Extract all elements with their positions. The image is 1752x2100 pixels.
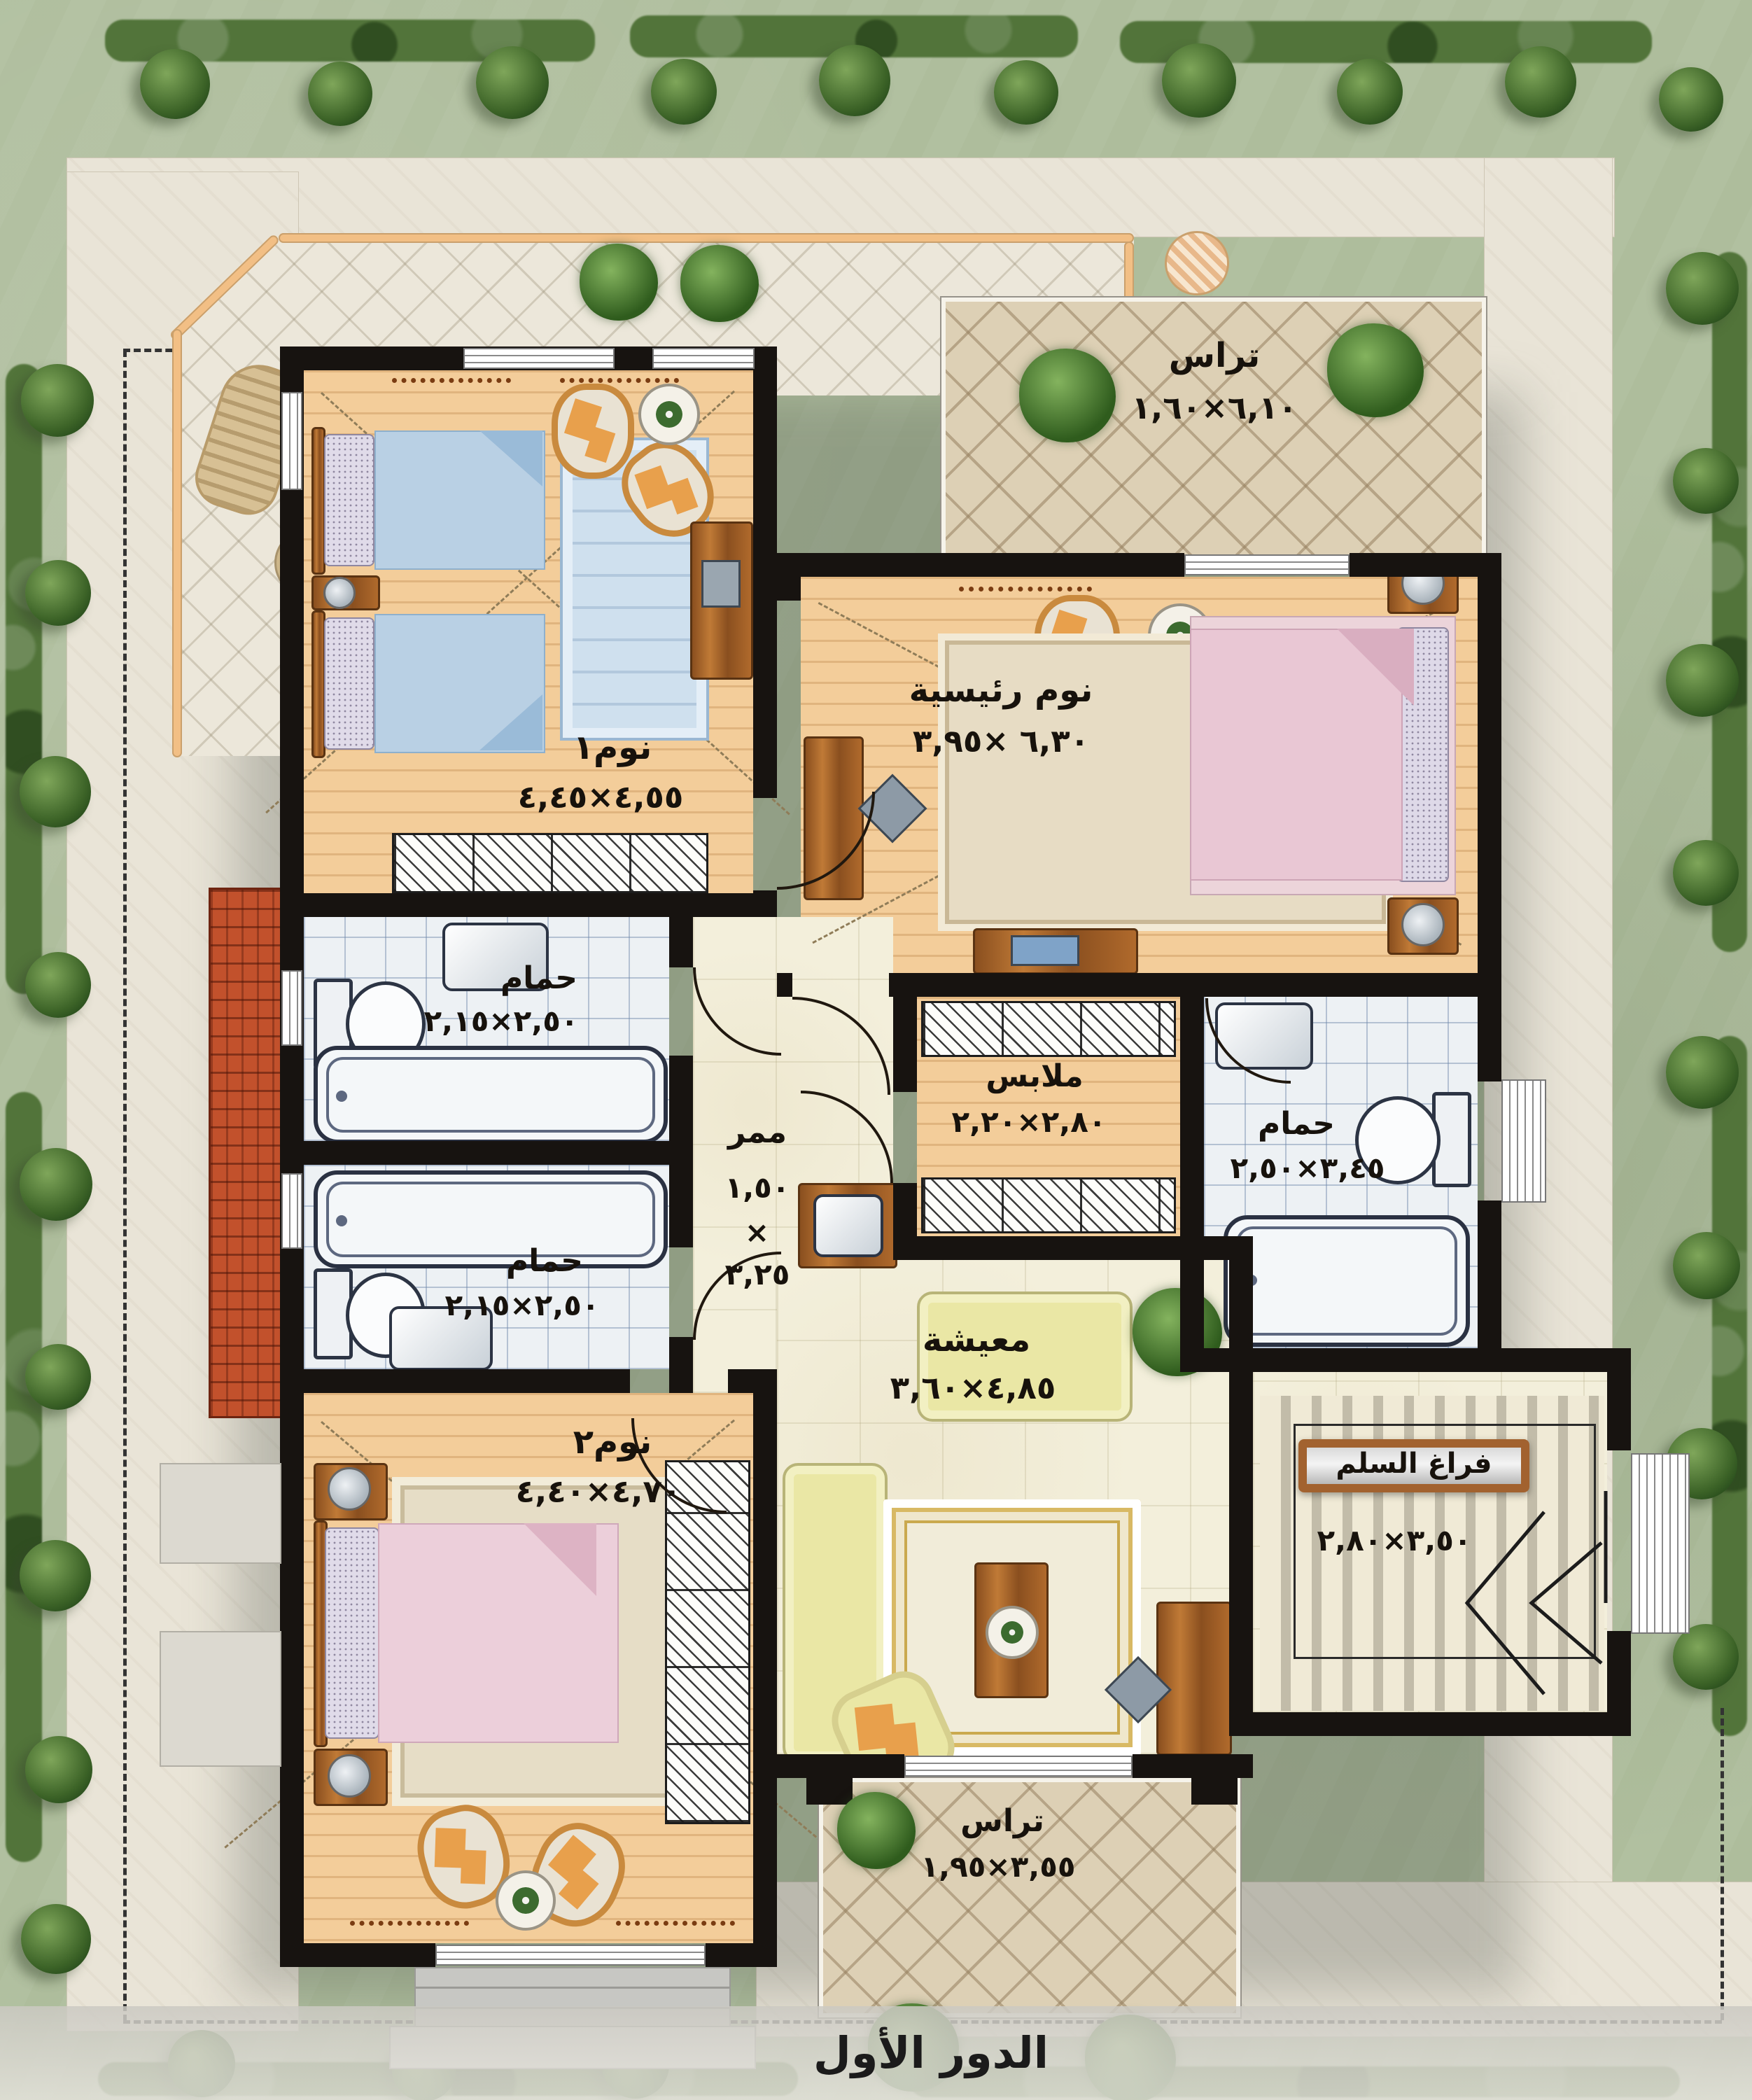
window <box>435 1945 706 1966</box>
roof-strip <box>209 888 286 1418</box>
wall <box>777 1754 904 1778</box>
stairwell-dims: ٣,٥٠×٢,٨٠ <box>1317 1523 1472 1557</box>
shrub-icon <box>1019 349 1116 442</box>
wall <box>1180 997 1204 1372</box>
tree-icon <box>1162 43 1236 118</box>
closet <box>921 1177 1176 1233</box>
armchair-icon <box>552 384 634 479</box>
corridor-dim-w: ١,٥٠ <box>725 1170 790 1205</box>
bathtub-icon <box>314 1046 668 1144</box>
closet <box>921 1001 1176 1057</box>
tree-icon <box>1673 1232 1740 1299</box>
tv-icon <box>1011 935 1079 966</box>
spiral-planter-icon <box>1165 231 1229 295</box>
bath-master-dims: ٣,٤٥×٢,٥٠ <box>1231 1151 1385 1185</box>
wall-trim <box>392 378 511 383</box>
tree-icon <box>1337 59 1403 125</box>
wall <box>893 997 917 1092</box>
setback-line <box>1721 1708 1724 2020</box>
wall <box>889 973 1501 997</box>
bed-single <box>311 427 542 570</box>
tree-icon <box>25 560 91 626</box>
bedroom-2-dims: ٤,٧٠×٤,٤٠ <box>516 1473 682 1510</box>
living-label: معيشة <box>923 1320 1030 1359</box>
tree-icon <box>1673 840 1739 906</box>
tree-icon <box>25 1736 92 1803</box>
tree-icon <box>25 952 91 1018</box>
wall <box>669 1337 693 1393</box>
tree-icon <box>21 1904 91 1974</box>
bath-2-dims: ٢,٥٠×٢,١٥ <box>445 1288 600 1322</box>
dressing-label: ملابس <box>986 1058 1083 1094</box>
window <box>1184 554 1350 575</box>
tree-icon <box>1505 46 1576 118</box>
corridor-dim-h: ٣,٢٥ <box>725 1257 790 1291</box>
wall <box>1229 1712 1631 1736</box>
wall <box>280 1943 435 1967</box>
tree-icon <box>20 1540 91 1611</box>
hedge-icon <box>6 364 42 994</box>
sink-icon <box>813 1194 883 1257</box>
tree-icon <box>1659 67 1723 132</box>
tree-icon <box>308 62 372 126</box>
window <box>463 348 615 369</box>
shrub-icon <box>580 244 658 321</box>
tree-icon <box>20 756 91 827</box>
wall <box>280 893 777 917</box>
master-bedroom-dims: ٦,٣٠ ×٣,٩٥ <box>913 722 1089 759</box>
wall <box>753 346 777 798</box>
wall <box>706 1943 777 1967</box>
tree-icon <box>651 59 717 125</box>
stairwell-label: فراغ السلم <box>1336 1448 1492 1480</box>
wall <box>1229 1236 1253 1736</box>
wall-trim <box>560 378 679 383</box>
shrub-icon <box>1327 323 1424 417</box>
window <box>281 392 302 490</box>
tree-icon <box>1666 644 1739 717</box>
bathtub-icon <box>1224 1215 1470 1347</box>
window <box>904 1756 1133 1777</box>
tree-icon <box>1673 448 1739 514</box>
bedroom-1-dims: ٤,٥٥×٤,٤٥ <box>518 778 684 815</box>
utility-box <box>160 1631 281 1767</box>
lamp-icon <box>328 1467 371 1511</box>
window <box>281 970 302 1046</box>
wall <box>753 1393 777 1967</box>
plant-icon <box>837 1792 916 1869</box>
floor-plan-canvas: فراغ السلم <box>0 0 1752 2100</box>
stair-plaque: فراغ السلم <box>1298 1439 1529 1492</box>
bedroom-1-label: نوم١ <box>573 728 652 767</box>
bath-master-label: حمام <box>1258 1106 1335 1142</box>
tree-icon <box>1666 252 1739 325</box>
wall <box>669 1056 693 1247</box>
walkway-border <box>172 329 182 757</box>
tree-icon <box>476 46 549 119</box>
window-bay <box>1501 1079 1546 1203</box>
wall <box>280 1369 630 1393</box>
wall <box>1133 1754 1253 1778</box>
wall <box>669 917 693 967</box>
dressing-dims: ٢,٨٠×٢,٢٠ <box>952 1105 1107 1139</box>
master-bedroom-label: نوم رئيسية <box>909 671 1093 710</box>
wall <box>728 1369 777 1393</box>
tree-icon <box>140 49 210 119</box>
setback-line <box>123 350 127 2022</box>
tree-icon <box>1666 1036 1739 1109</box>
wall <box>1478 553 1501 997</box>
wardrobe <box>665 1460 750 1824</box>
bed-double <box>1190 616 1453 892</box>
round-table-icon <box>638 384 700 445</box>
wall-trim <box>616 1921 735 1926</box>
wall <box>777 553 1184 577</box>
wall-trim <box>959 587 1092 591</box>
window-bay <box>1631 1453 1690 1634</box>
lamp-icon <box>328 1754 371 1798</box>
tree-icon <box>20 1148 92 1221</box>
bathtub-icon <box>314 1170 668 1268</box>
wall <box>1478 1200 1501 1372</box>
lamp-icon <box>323 577 356 609</box>
corridor-label: ممر <box>728 1114 787 1150</box>
desk <box>1156 1602 1232 1756</box>
tree-icon <box>25 1344 91 1410</box>
wall-trim <box>350 1921 469 1926</box>
flower-vase-icon <box>986 1606 1039 1659</box>
tree-icon <box>21 364 94 437</box>
wall <box>280 1141 693 1165</box>
window <box>281 1173 302 1249</box>
wardrobe <box>392 833 708 893</box>
wall <box>1478 997 1501 1081</box>
bath-2-label: حمام <box>506 1243 583 1279</box>
utility-box <box>160 1463 281 1564</box>
shrub-icon <box>680 245 759 322</box>
bed-double <box>314 1520 622 1743</box>
wall <box>1607 1372 1631 1450</box>
floor-title: الدور الأول <box>813 2027 1049 2078</box>
tree-icon <box>994 60 1058 125</box>
round-table-icon <box>496 1870 556 1931</box>
wall <box>893 1236 1229 1260</box>
corridor-times: × <box>745 1215 770 1249</box>
walkway-border <box>279 233 1134 243</box>
wall <box>777 553 801 601</box>
terrace-top-label: تراس <box>1169 336 1261 375</box>
terrace-bottom-label: تراس <box>960 1803 1044 1839</box>
lamp-icon <box>1401 903 1445 946</box>
terrace-bottom-dims: ٣,٥٥×١,٩٥ <box>921 1849 1076 1884</box>
bed-single <box>311 610 542 754</box>
bedroom-2-label: نوم٢ <box>573 1422 652 1462</box>
tree-icon <box>1673 1624 1739 1690</box>
monitor-icon <box>701 560 741 608</box>
bath-1-label: حمام <box>500 960 577 996</box>
living-dims: ٤,٨٥×٣,٦٠ <box>890 1369 1056 1406</box>
window <box>652 348 755 369</box>
tree-icon <box>819 45 890 116</box>
stair-direction-arrow <box>1439 1491 1610 1701</box>
terrace-top-dims: ٦,١٠×١,٦٠ <box>1132 389 1298 426</box>
bath-1-dims: ٢,٥٠×٢,١٥ <box>424 1004 579 1038</box>
